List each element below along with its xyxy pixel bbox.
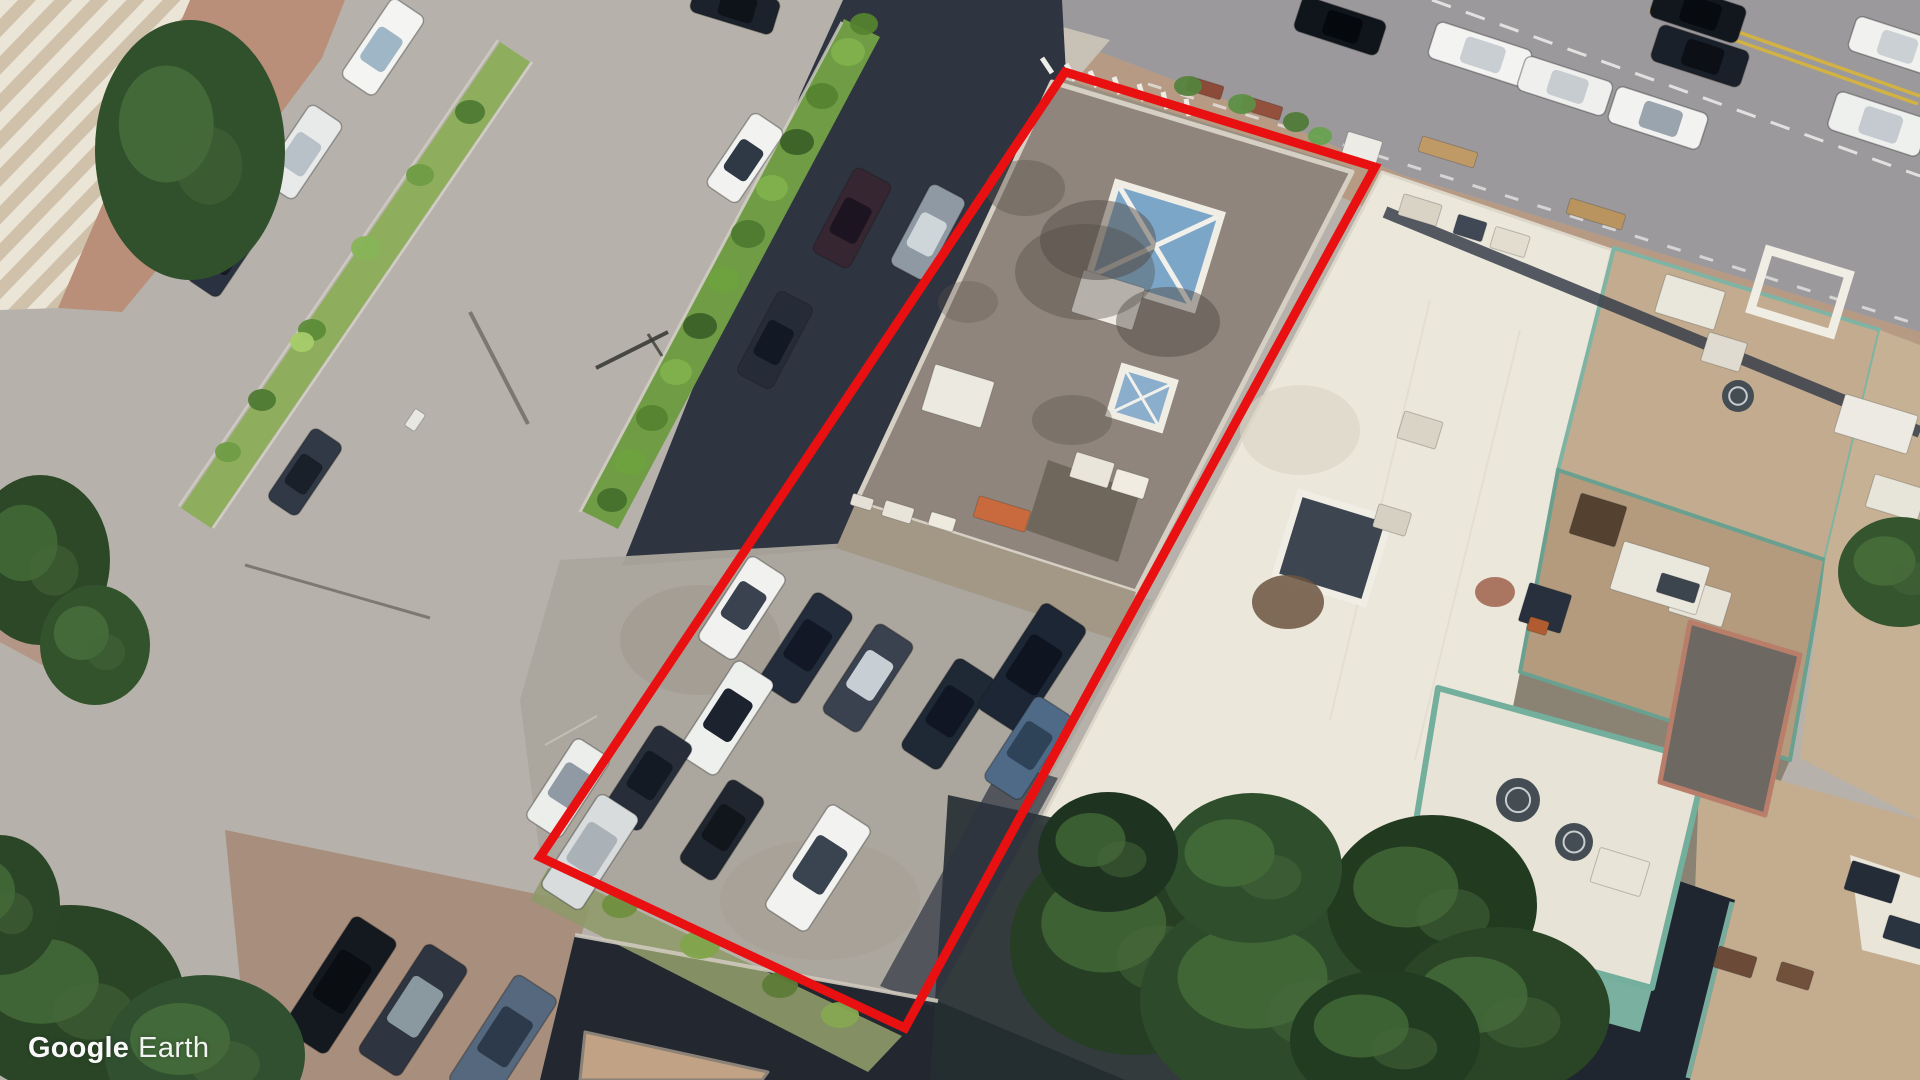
tree-canopy <box>1162 793 1342 943</box>
tree-canopy <box>1038 792 1178 912</box>
aerial-imagery[interactable] <box>0 0 1920 1080</box>
shrub <box>248 389 276 411</box>
shrub <box>215 442 241 462</box>
shrub <box>660 359 692 385</box>
canopy-highlight <box>30 545 79 596</box>
canopy-highlight <box>1239 855 1302 900</box>
canopy-highlight <box>176 127 243 205</box>
watermark-brand: Google <box>28 1032 129 1064</box>
roof-stain <box>1032 395 1112 445</box>
shrub <box>597 488 627 512</box>
shrub <box>1308 127 1332 145</box>
shrub <box>756 175 788 201</box>
google-earth-viewport[interactable]: GoogleEarth <box>0 0 1920 1080</box>
shrub <box>1283 112 1309 132</box>
fan-housing <box>1555 823 1593 861</box>
vent-fan <box>1555 823 1593 861</box>
fan-housing <box>1722 380 1754 412</box>
shrub <box>614 449 646 475</box>
roof-stain <box>1240 385 1360 475</box>
shrub <box>290 332 314 352</box>
shrub <box>708 267 740 293</box>
shrub <box>1228 94 1256 114</box>
fan-housing <box>1496 778 1540 822</box>
tree-canopy <box>95 20 285 280</box>
shrub <box>351 236 381 260</box>
shrub <box>1174 76 1202 96</box>
roof-stain <box>938 281 998 323</box>
shrub <box>806 83 838 109</box>
canopy-highlight <box>1098 841 1147 877</box>
shrub <box>831 38 865 66</box>
shrub <box>406 164 434 186</box>
watermark-product: Earth <box>138 1032 209 1064</box>
shrub <box>731 220 765 248</box>
google-earth-watermark: GoogleEarth <box>28 1032 209 1065</box>
canopy-highlight <box>87 634 126 670</box>
vent-fan <box>1496 778 1540 822</box>
vent-fan <box>1722 380 1754 412</box>
rooftop-debris <box>1252 575 1324 629</box>
canopy-highlight <box>1371 1027 1438 1069</box>
shrub <box>683 313 717 339</box>
shrub <box>850 13 878 35</box>
canopy-highlight <box>1484 997 1561 1048</box>
shrub <box>455 100 485 124</box>
shrub <box>636 405 668 431</box>
tree-canopy <box>40 585 150 705</box>
roof-stain <box>1475 577 1515 607</box>
shrub <box>780 129 814 155</box>
roof-stain <box>1015 224 1155 320</box>
